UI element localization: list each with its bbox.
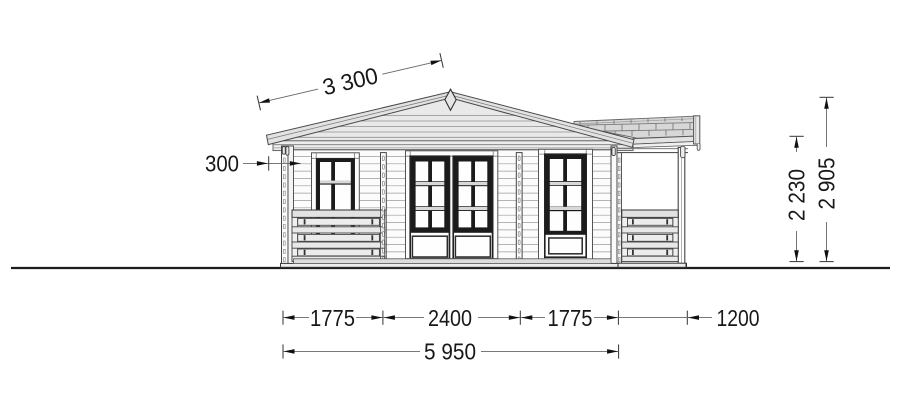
svg-text:300: 300 xyxy=(205,151,239,177)
svg-text:1775: 1775 xyxy=(548,305,593,331)
svg-text:1775: 1775 xyxy=(310,305,355,331)
svg-text:3 300: 3 300 xyxy=(320,62,380,100)
svg-text:5 950: 5 950 xyxy=(424,339,476,365)
svg-text:2 230: 2 230 xyxy=(784,169,810,221)
svg-text:2400: 2400 xyxy=(428,305,472,331)
svg-text:1200: 1200 xyxy=(717,305,760,331)
svg-text:2 905: 2 905 xyxy=(814,158,840,210)
